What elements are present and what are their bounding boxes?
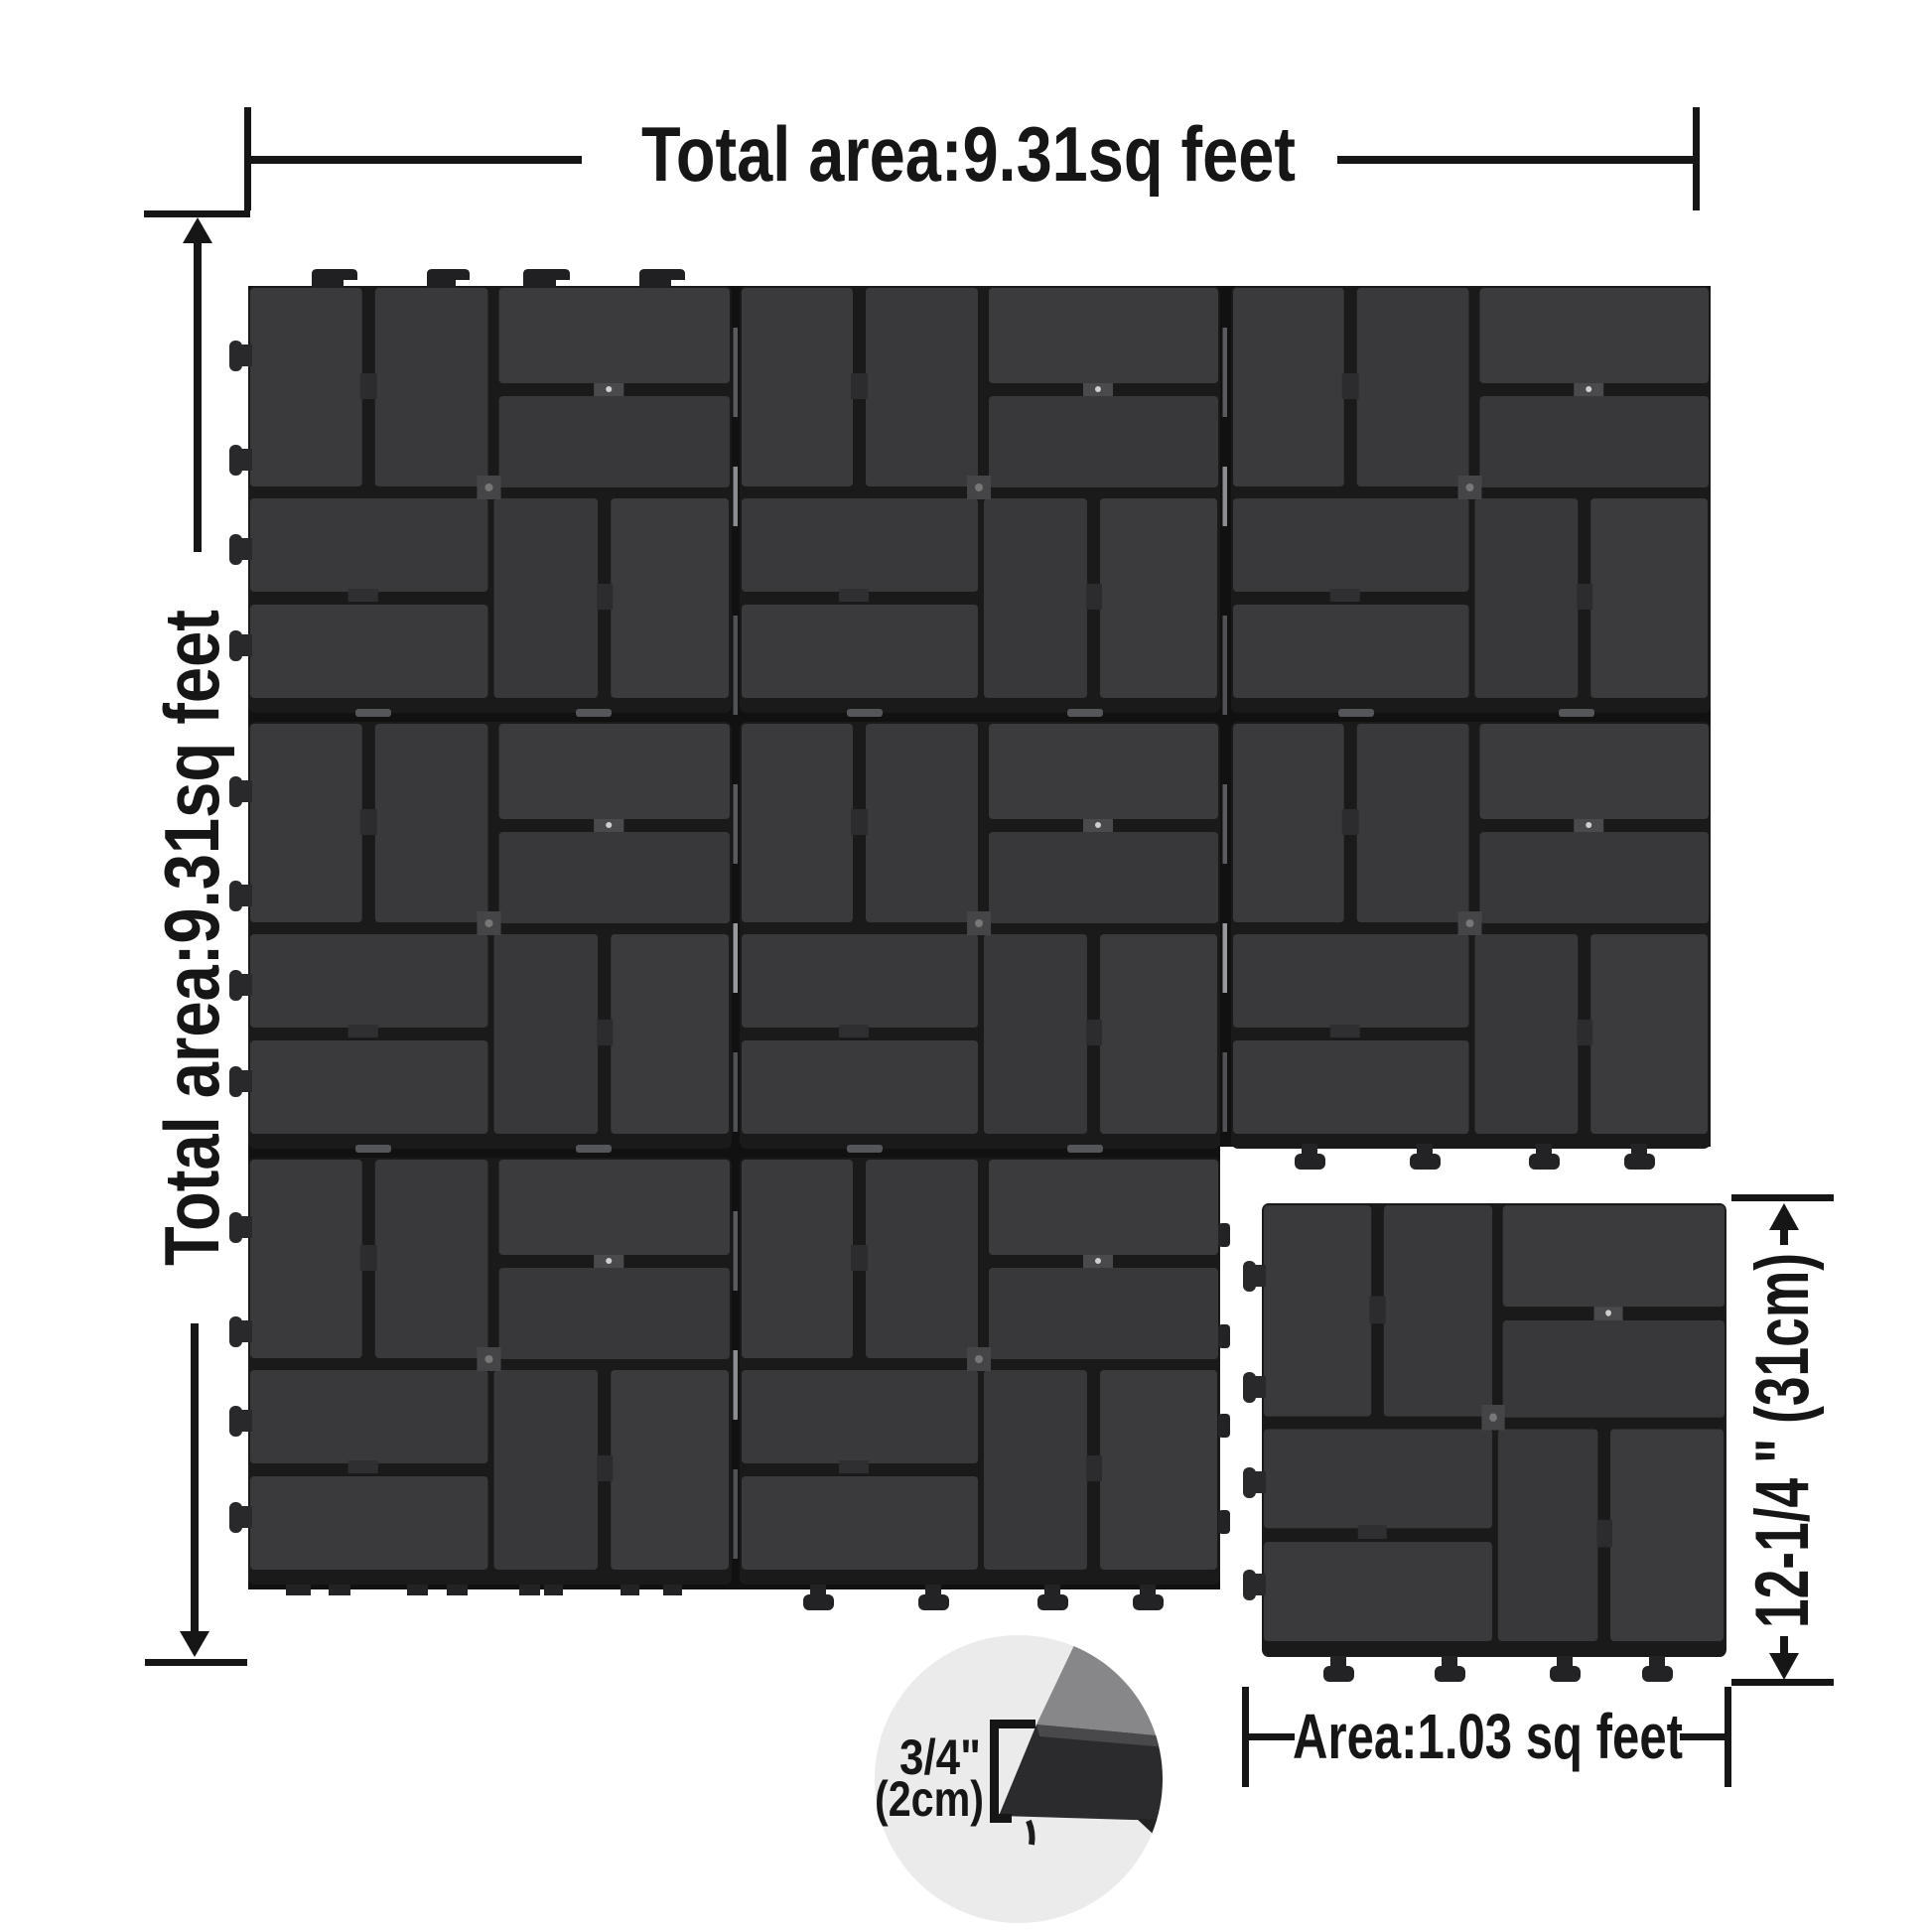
svg-text:12-1/4 " (31cm): 12-1/4 " (31cm) [1740, 1253, 1825, 1628]
svg-text:(2cm): (2cm) [875, 1771, 984, 1827]
svg-text:Total area:9.31sq feet: Total area:9.31sq feet [148, 610, 235, 1266]
svg-text:Total area:9.31sq feet: Total area:9.31sq feet [641, 110, 1296, 198]
svg-text:Area:1.03 sq feet: Area:1.03 sq feet [1293, 1701, 1683, 1772]
